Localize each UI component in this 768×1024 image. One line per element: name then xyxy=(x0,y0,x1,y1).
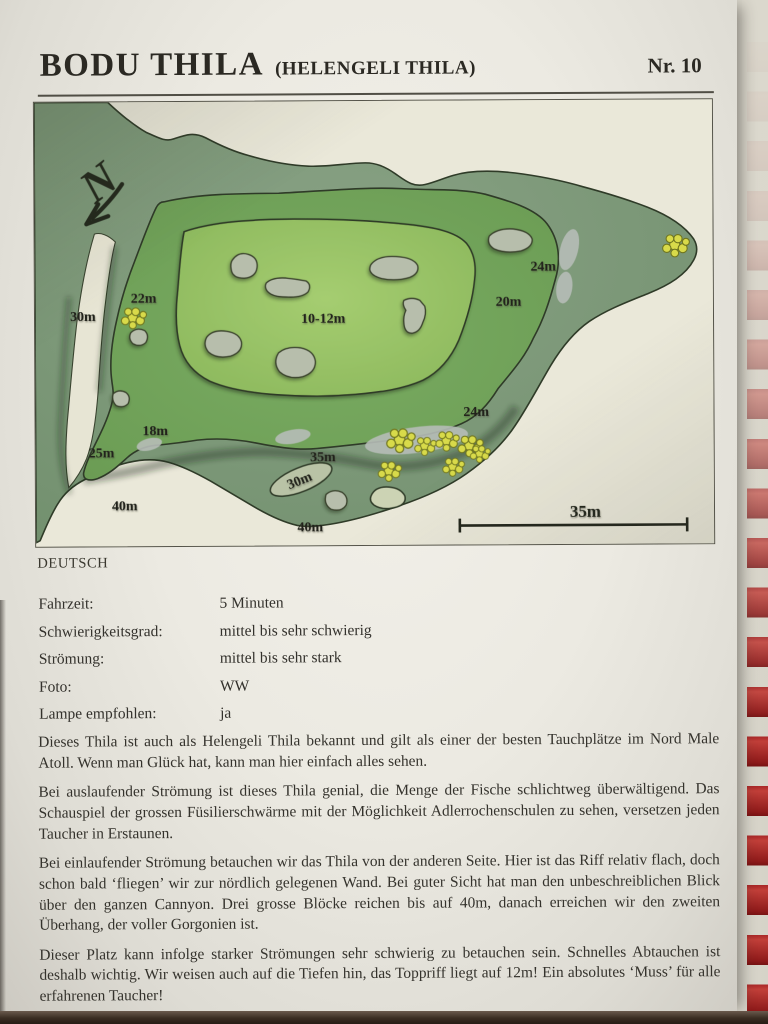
fact-label: Fahrzeit: xyxy=(38,595,219,624)
depth-label: 22m xyxy=(131,292,157,307)
depth-label: 10-12m xyxy=(301,312,346,327)
fact-value: mittel bis sehr stark xyxy=(220,649,342,677)
page-subtitle: (HELENGELI THILA) xyxy=(275,57,476,80)
page: BODU THILA (HELENGELI THILA) Nr. 10 xyxy=(0,0,737,1014)
depth-label: 18m xyxy=(142,424,168,439)
depth-label: 30m xyxy=(70,310,96,325)
language-label: DEUTSCH xyxy=(37,555,108,572)
facts-table: Fahrzeit:5 MinutenSchwierigkeitsgrad:mit… xyxy=(38,592,659,733)
fact-label: Schwierigkeitsgrad: xyxy=(39,622,220,651)
fact-label: Strömung: xyxy=(39,650,220,679)
binding-teeth-fade xyxy=(742,0,768,1024)
photo-left-edge xyxy=(0,600,6,1016)
depth-label: 24m xyxy=(463,405,489,420)
dive-site-map-svg: N 35m 30m22m10-12m20m24m24m18m25m35m30m4… xyxy=(34,99,714,547)
depth-label: 40m xyxy=(112,499,138,514)
paragraph: Bei auslaufender Strömung ist dieses Thi… xyxy=(38,779,719,845)
fact-row: Strömung:mittel bis sehr stark xyxy=(39,648,659,679)
fact-row: Foto:WW xyxy=(39,675,659,706)
header-divider xyxy=(38,91,714,97)
photo-bottom-edge xyxy=(0,1011,768,1024)
depth-label: 20m xyxy=(496,295,522,310)
fact-label: Foto: xyxy=(39,678,220,707)
fact-value: WW xyxy=(220,677,249,705)
fact-row: Fahrzeit:5 Minuten xyxy=(38,592,658,623)
page-number: Nr. 10 xyxy=(648,53,702,78)
depth-label: 25m xyxy=(89,447,115,462)
fact-label: Lampe empfohlen: xyxy=(39,705,220,734)
fact-value: mittel bis sehr schwierig xyxy=(220,622,372,650)
dive-site-map: N 35m 30m22m10-12m20m24m24m18m25m35m30m4… xyxy=(33,98,715,548)
map-vignette xyxy=(34,99,714,547)
page-title: BODU THILA xyxy=(40,47,265,85)
fact-value: ja xyxy=(220,705,231,733)
book-page-photo: BODU THILA (HELENGELI THILA) Nr. 10 xyxy=(0,0,768,1024)
page-content: BODU THILA (HELENGELI THILA) Nr. 10 xyxy=(0,0,740,1016)
depth-label: 24m xyxy=(530,260,556,275)
depth-label: 35m xyxy=(310,450,336,465)
page-header: BODU THILA (HELENGELI THILA) Nr. 10 xyxy=(40,44,702,84)
paragraph: Bei einlaufender Strömung betauchen wir … xyxy=(39,850,720,937)
depth-label: 40m xyxy=(297,520,323,535)
fact-value: 5 Minuten xyxy=(219,594,283,622)
description: Dieses Thila ist auch als Helengeli Thil… xyxy=(38,729,720,1016)
paragraph: Dieser Platz kann infolge starker Strömu… xyxy=(39,942,720,1008)
paragraph: Dieses Thila ist auch als Helengeli Thil… xyxy=(38,729,719,774)
fact-row: Schwierigkeitsgrad:mittel bis sehr schwi… xyxy=(39,620,659,651)
